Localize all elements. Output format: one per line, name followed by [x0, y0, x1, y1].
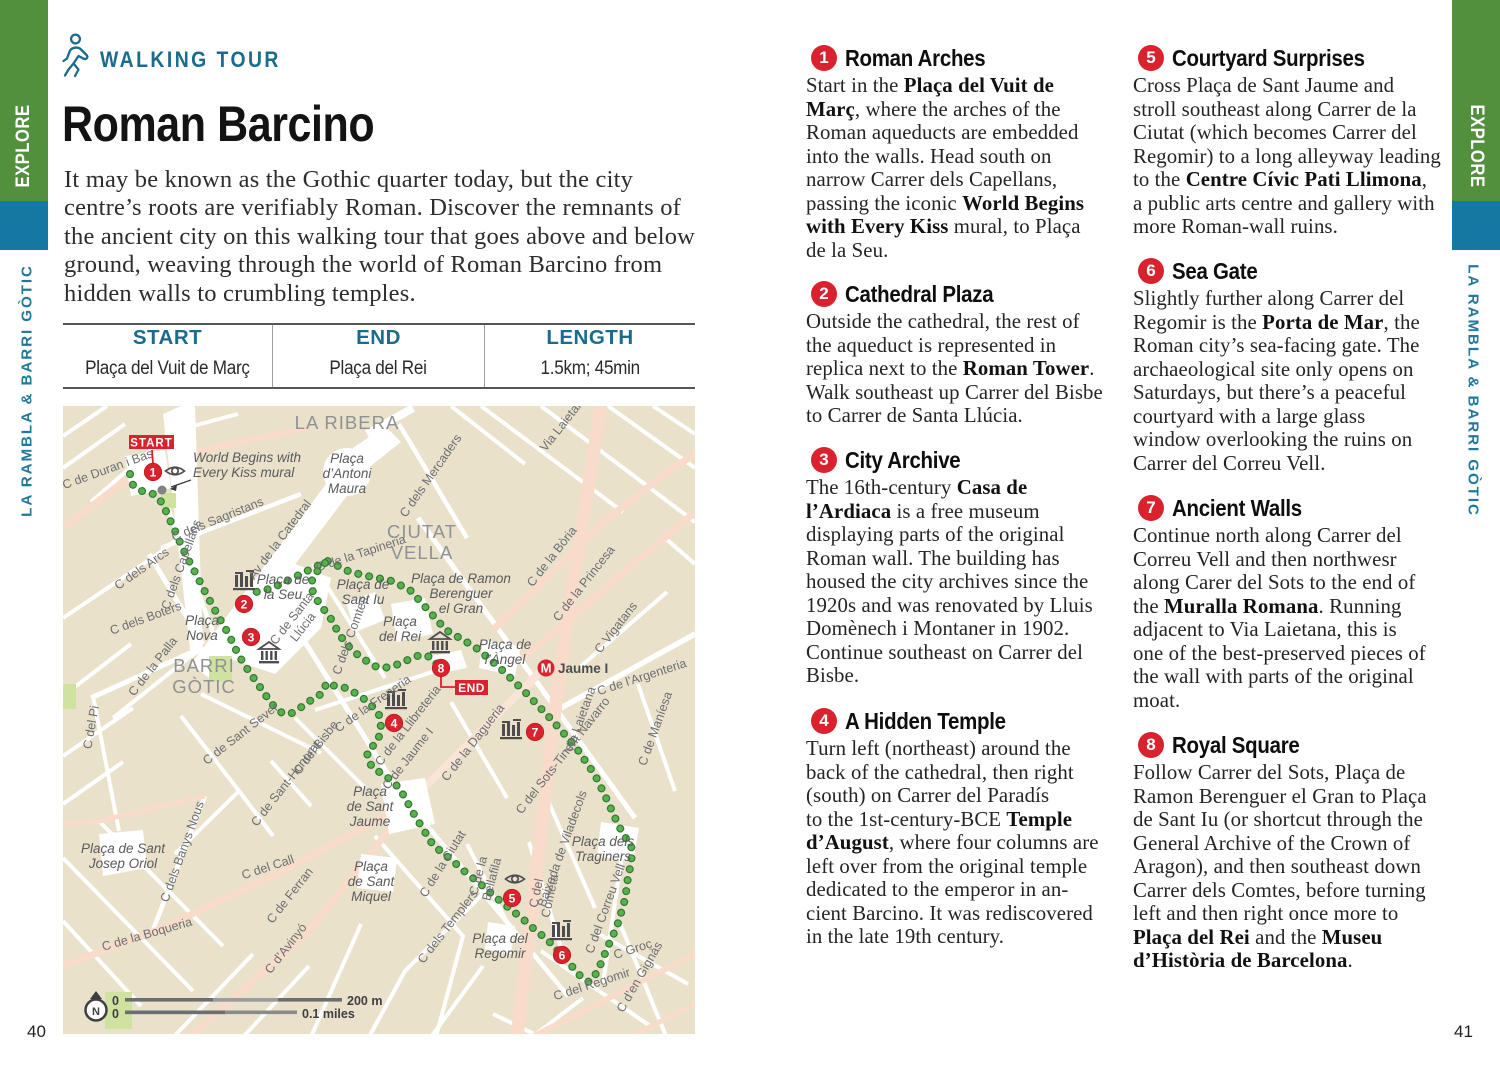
svg-text:Plaça: Plaça [354, 859, 388, 874]
svg-text:7: 7 [532, 725, 539, 739]
svg-text:Regomir: Regomir [474, 946, 526, 961]
svg-text:5: 5 [509, 891, 516, 905]
svg-text:0: 0 [112, 1007, 119, 1021]
svg-text:Plaça de Sant: Plaça de Sant [81, 841, 166, 856]
svg-text:de Sant: de Sant [347, 799, 395, 814]
svg-text:0.1 miles: 0.1 miles [302, 1007, 355, 1021]
svg-text:START: START [130, 438, 172, 450]
svg-text:Plaça: Plaça [330, 451, 364, 466]
svg-text:0: 0 [112, 994, 119, 1008]
svg-text:Plaça: Plaça [185, 613, 219, 628]
svg-text:Every Kiss mural: Every Kiss mural [193, 465, 295, 480]
svg-text:Plaça de: Plaça de [479, 637, 532, 652]
svg-text:GÒTIC: GÒTIC [172, 676, 236, 697]
svg-text:M: M [541, 661, 552, 676]
svg-text:Maura: Maura [328, 481, 367, 496]
svg-text:END: END [458, 681, 485, 695]
svg-text:Plaça de: Plaça de [257, 572, 310, 587]
svg-text:Plaça de Ramon: Plaça de Ramon [411, 571, 511, 586]
svg-text:Plaça dels: Plaça dels [572, 834, 635, 849]
svg-text:World Begins with: World Begins with [193, 450, 301, 465]
svg-text:del Rei: del Rei [379, 629, 422, 644]
svg-text:2: 2 [241, 597, 248, 611]
svg-text:6: 6 [559, 948, 566, 962]
svg-text:de Sant: de Sant [348, 874, 396, 889]
svg-text:Berenguer: Berenguer [429, 586, 493, 601]
svg-text:Plaça: Plaça [383, 614, 417, 629]
svg-text:N: N [92, 1006, 100, 1018]
svg-text:Plaça del: Plaça del [472, 931, 529, 946]
svg-text:el Gran: el Gran [439, 601, 483, 616]
svg-text:Traginers: Traginers [575, 849, 631, 864]
svg-text:l’Àngel: l’Àngel [485, 652, 527, 667]
svg-text:LA RIBERA: LA RIBERA [295, 412, 400, 433]
svg-text:200 m: 200 m [347, 994, 382, 1008]
svg-text:Josep Oriol: Josep Oriol [88, 856, 158, 871]
svg-text:1: 1 [150, 465, 157, 479]
svg-text:Jaume I: Jaume I [558, 661, 608, 676]
svg-text:8: 8 [438, 661, 445, 675]
svg-text:Miquel: Miquel [351, 889, 392, 904]
svg-text:Jaume: Jaume [349, 814, 391, 829]
svg-text:d’Antoni: d’Antoni [323, 466, 373, 481]
svg-text:Nova: Nova [186, 628, 218, 643]
svg-text:Plaça de: Plaça de [337, 577, 390, 592]
svg-text:3: 3 [248, 630, 255, 644]
svg-text:4: 4 [391, 716, 398, 730]
svg-text:BARRI: BARRI [173, 655, 235, 676]
